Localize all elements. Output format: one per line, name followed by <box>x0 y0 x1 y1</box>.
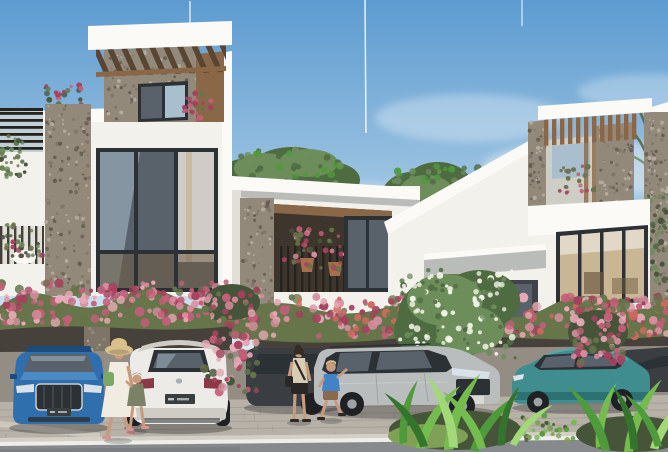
rooftop-pergola-tower <box>88 21 232 126</box>
car-audi-blue <box>9 346 109 434</box>
handbag <box>285 376 293 387</box>
rendering-canvas <box>0 0 668 452</box>
roof-terrace-railing <box>0 108 43 152</box>
left-balcony <box>0 222 45 264</box>
tower-window <box>138 81 188 122</box>
picture-window-left <box>96 148 218 292</box>
green-bag <box>103 372 114 386</box>
townhouse-left <box>0 21 232 296</box>
scene-rendering <box>0 0 668 452</box>
stone-pier <box>44 104 91 296</box>
middle-ground-window <box>344 216 392 292</box>
tower-roof-cap <box>88 21 232 50</box>
